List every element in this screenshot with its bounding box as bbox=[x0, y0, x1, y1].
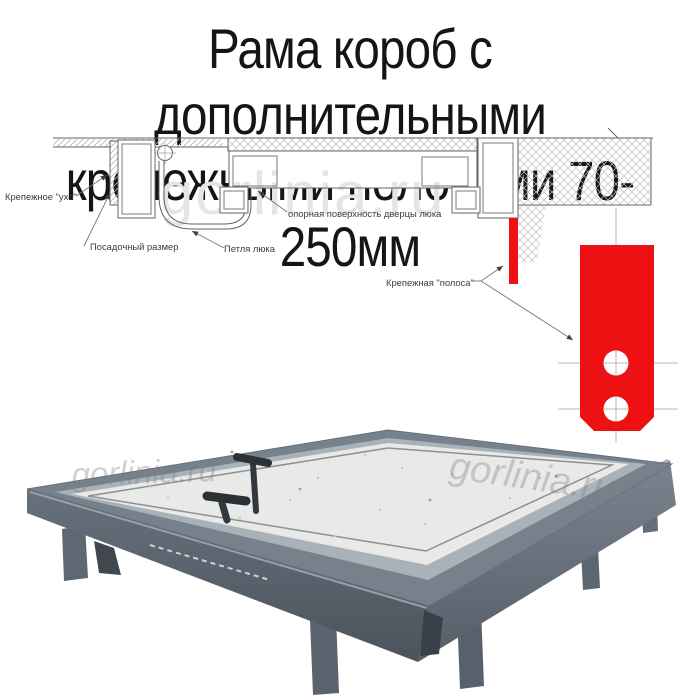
label-fastening-ear: Крепежное "ухо" bbox=[5, 191, 77, 202]
watermark-photo-left: gorlinia.ru bbox=[71, 451, 217, 493]
label-mounting-size: Посадочный размер bbox=[90, 241, 178, 252]
handle-bar bbox=[207, 496, 246, 501]
handle-stem bbox=[253, 464, 256, 511]
label-hinge: Петля люка bbox=[224, 243, 276, 254]
product-card: Рама короб с дополнительными крепежными … bbox=[0, 0, 700, 700]
product-photo: gorlinia.ru gorlinia.ru bbox=[0, 420, 700, 700]
label-support-surface: опорная поверхность дверцы люка bbox=[288, 208, 442, 219]
handle-stem bbox=[222, 503, 227, 520]
label-fastening-strip: Крепежная "полоса" bbox=[386, 277, 474, 288]
fastening-strip-side-view bbox=[509, 218, 518, 284]
frame-corner-opening bbox=[420, 610, 443, 656]
fastening-strip-enlarged bbox=[558, 208, 678, 443]
technical-diagram: gorlinia.ru bbox=[0, 125, 700, 455]
